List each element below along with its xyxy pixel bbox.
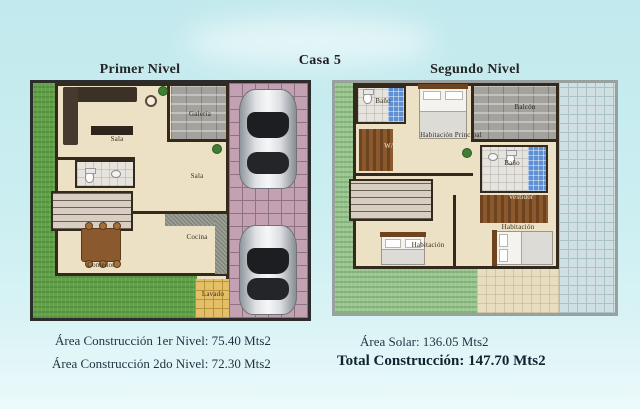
room-label-vestidor: Vestidor <box>491 193 551 201</box>
total-construction: Total Construcción: 147.70 Mts2 <box>337 353 546 370</box>
kitchen-counter <box>215 214 227 274</box>
area-construction-level1: Área Construcción 1er Nivel: 75.40 Mts2 <box>55 333 271 349</box>
car-rear-window <box>247 152 289 174</box>
chair-icon <box>85 222 93 230</box>
bed-icon <box>495 231 553 265</box>
chair-icon <box>99 222 107 230</box>
clock-icon <box>145 95 157 107</box>
bed-pillow <box>499 234 508 247</box>
stairs <box>349 179 433 221</box>
grass-bottom-area <box>57 273 197 318</box>
wall <box>353 173 473 176</box>
second-level-title: Segundo Nivel <box>355 62 595 78</box>
grass-bottom-area <box>355 269 477 313</box>
patio-tile-area <box>559 83 615 313</box>
plant-icon <box>213 145 221 153</box>
wall <box>353 266 559 269</box>
rear-floor-area <box>477 269 559 313</box>
room-label-habitacion-principal: Habitación Principal <box>403 131 499 139</box>
room-label-cocina: Cocina <box>173 233 221 241</box>
room-label-sala: Sala <box>95 135 139 143</box>
car-windshield <box>247 248 289 274</box>
chair-icon <box>113 222 121 230</box>
toilet-icon <box>85 171 94 183</box>
bed-pillow <box>499 249 508 262</box>
sofa-icon <box>63 87 78 145</box>
wc-closet-floor <box>359 129 393 171</box>
shower-tiles <box>388 88 404 122</box>
bed-headboard <box>380 232 426 237</box>
sink-icon <box>111 170 121 178</box>
room-label-sala-center: Sala <box>175 172 219 180</box>
wall <box>55 83 229 86</box>
bed-headboard <box>418 84 468 89</box>
room-label-lavado: Lavado <box>191 290 235 298</box>
bed-headboard <box>492 230 497 266</box>
bathroom-top-floor <box>356 86 406 124</box>
wall <box>556 83 559 269</box>
second-level-floorplan: Baño Habitación Principal Balcón W/C Bañ… <box>332 80 618 316</box>
room-label-habitacion-right: Habitación <box>483 223 553 231</box>
car-windshield <box>247 112 289 138</box>
wall <box>55 83 58 276</box>
wall <box>167 139 229 142</box>
area-solar: Área Solar: 136.05 Mts2 <box>360 334 489 350</box>
bed-blanket <box>382 249 424 264</box>
car-icon <box>239 89 297 189</box>
wall <box>55 273 229 276</box>
car-icon <box>239 225 297 315</box>
room-label-wc: W/C <box>373 142 409 150</box>
car-rear-window <box>247 278 289 300</box>
room-label-galeria: Galería <box>173 110 227 118</box>
laundry-floor <box>195 279 229 318</box>
wall <box>471 139 559 142</box>
bathroom-mid-floor <box>480 145 548 193</box>
bed-icon <box>381 235 425 265</box>
area-construction-level2: Área Construcción 2do Nivel: 72.30 Mts2 <box>52 356 271 372</box>
room-label-balcon: Balcón <box>497 103 553 111</box>
first-level-title: Primer Nivel <box>25 62 255 78</box>
bed-blanket <box>521 232 552 264</box>
dining-table-icon <box>81 228 121 262</box>
bathroom-floor <box>75 160 135 188</box>
bed-pillow <box>445 91 463 100</box>
shower-tiles <box>528 147 546 191</box>
wall <box>167 83 170 141</box>
plant-icon <box>159 87 167 95</box>
room-label-comedor: Comedor <box>75 261 127 269</box>
plant-icon <box>463 149 471 157</box>
bed-pillow <box>423 91 441 100</box>
wall <box>453 195 456 269</box>
room-label-bano-mid: Baño <box>487 159 537 167</box>
room-label-habitacion-left: Habitación <box>393 241 463 249</box>
console-table-icon <box>91 126 133 135</box>
room-label-bano-top: Baño <box>363 97 403 105</box>
first-level-floorplan: Sala Galería Sala Cocina Comedor Lavado <box>30 80 311 321</box>
